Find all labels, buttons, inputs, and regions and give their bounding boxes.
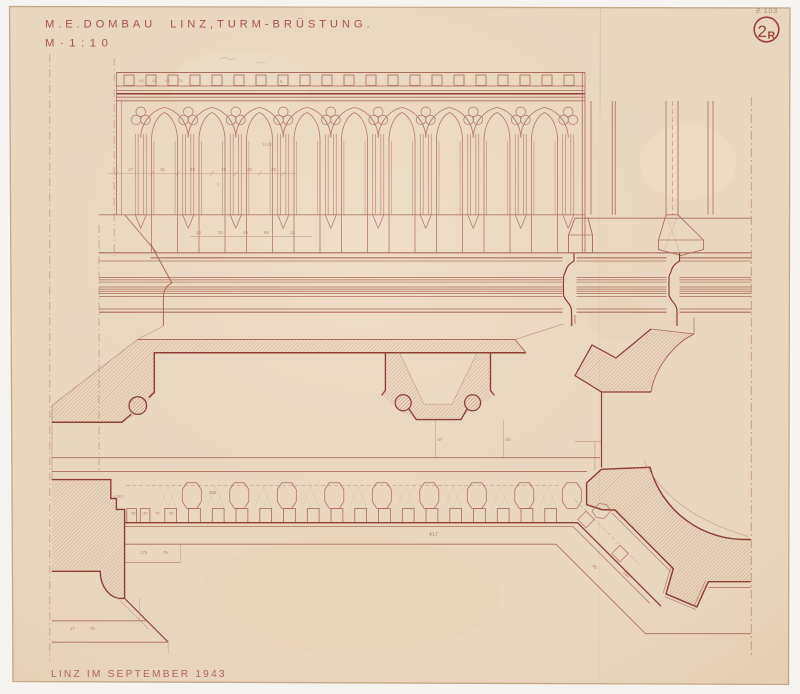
svg-text:13: 13 [196, 230, 202, 235]
svg-text:LINZ IM SEPTEMBER 1943: LINZ IM SEPTEMBER 1943 [51, 669, 227, 680]
svg-text:45: 45 [139, 78, 144, 83]
svg-text:175: 175 [140, 550, 148, 555]
svg-text:15: 15 [160, 167, 166, 172]
svg-text:13: 13 [290, 230, 296, 235]
svg-text:45: 45 [271, 167, 277, 172]
svg-text:M.E.DOMBAU LINZ,TURM-BRÜSTUNG: M.E.DOMBAU LINZ,TURM-BRÜSTUNG. [45, 19, 374, 31]
svg-text:M·1:10: M·1:10 [45, 38, 113, 50]
svg-text:45: 45 [221, 167, 227, 172]
svg-text:55: 55 [506, 437, 511, 442]
svg-text:30: 30 [218, 230, 224, 235]
svg-text:45: 45 [247, 167, 253, 172]
svg-text:75: 75 [163, 550, 168, 555]
svg-text:17: 17 [128, 167, 134, 172]
svg-text:45: 45 [131, 511, 136, 516]
svg-text:2: 2 [758, 22, 767, 41]
svg-text:45: 45 [143, 511, 148, 516]
svg-text:75: 75 [90, 626, 95, 631]
svg-text:75: 75 [155, 511, 160, 516]
svg-text:65: 65 [264, 230, 270, 235]
svg-text:45: 45 [165, 78, 170, 83]
svg-text:75: 75 [178, 78, 183, 83]
svg-text:47: 47 [438, 437, 443, 442]
svg-text:1415: 1415 [262, 142, 272, 147]
svg-text:45: 45 [243, 230, 249, 235]
svg-text:255: 255 [209, 490, 217, 495]
svg-text:Ƶ 103: Ƶ 103 [756, 6, 778, 15]
svg-text:R: R [768, 30, 776, 42]
svg-text:417: 417 [429, 532, 438, 538]
svg-text:17: 17 [70, 626, 75, 631]
svg-text:45: 45 [152, 78, 157, 83]
svg-text:45: 45 [190, 167, 196, 172]
svg-text:45: 45 [169, 511, 174, 516]
svg-text:4·MG: 4·MG [113, 494, 124, 499]
